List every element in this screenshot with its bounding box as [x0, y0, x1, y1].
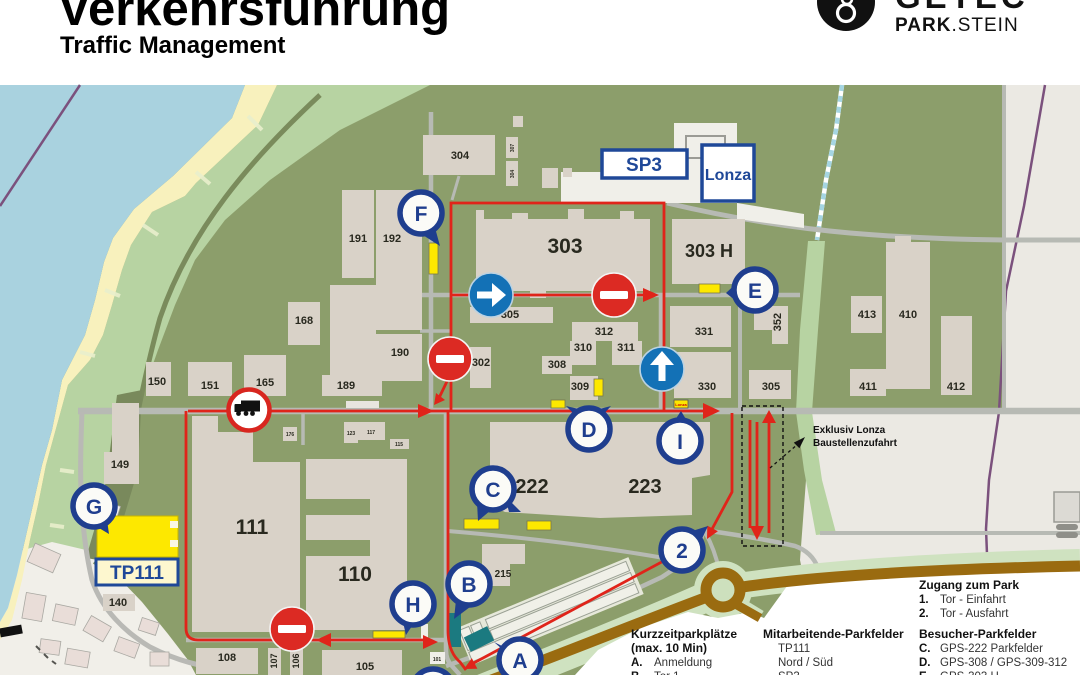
- svg-text:352: 352: [772, 313, 784, 331]
- svg-text:108: 108: [218, 652, 236, 664]
- svg-text:151: 151: [201, 380, 219, 392]
- svg-text:192: 192: [383, 233, 401, 245]
- svg-text:123: 123: [347, 431, 356, 437]
- svg-text:Traffic Management: Traffic Management: [60, 32, 285, 59]
- svg-text:Exklusiv Lonza: Exklusiv Lonza: [813, 425, 886, 436]
- svg-text:D.GPS-308 / GPS-309-312: D.GPS-308 / GPS-309-312: [919, 657, 1067, 669]
- svg-text:303: 303: [547, 235, 582, 258]
- svg-text:312: 312: [595, 326, 613, 338]
- svg-text:Nord / Süd: Nord / Süd: [778, 657, 833, 669]
- svg-text:222: 222: [515, 476, 548, 498]
- svg-text:Baustellenzufahrt: Baustellenzufahrt: [813, 438, 898, 449]
- svg-text:307: 307: [510, 144, 516, 153]
- svg-text:304: 304: [510, 170, 516, 179]
- svg-text:B.Tor 1: B.Tor 1: [631, 671, 680, 675]
- svg-text:PARK.STEIN: PARK.STEIN: [895, 15, 1019, 36]
- svg-text:311: 311: [617, 342, 635, 354]
- svg-text:106: 106: [291, 653, 301, 668]
- svg-text:Kurzzeitparkplätze: Kurzzeitparkplätze: [631, 627, 737, 641]
- svg-text:D: D: [581, 419, 596, 442]
- svg-text:E: E: [748, 280, 762, 303]
- svg-text:GETEC: GETEC: [895, 0, 1029, 15]
- svg-text:149: 149: [111, 459, 129, 471]
- svg-text:Mitarbeitende-Parkfelder: Mitarbeitende-Parkfelder: [763, 627, 904, 641]
- svg-text:2: 2: [676, 540, 688, 563]
- svg-text:309: 309: [571, 381, 589, 393]
- svg-text:310: 310: [574, 342, 592, 354]
- svg-text:B: B: [461, 574, 476, 597]
- svg-text:302: 302: [472, 357, 490, 369]
- svg-text:308: 308: [548, 359, 566, 371]
- svg-text:105: 105: [356, 661, 374, 673]
- svg-text:I: I: [677, 431, 683, 454]
- svg-text:176: 176: [286, 432, 295, 438]
- svg-text:331: 331: [695, 326, 713, 338]
- svg-text:189: 189: [337, 380, 355, 392]
- svg-text:140: 140: [109, 597, 127, 609]
- svg-text:165: 165: [256, 377, 274, 389]
- svg-text:304: 304: [451, 150, 470, 162]
- svg-text:Zugang zum Park: Zugang zum Park: [919, 578, 1019, 592]
- svg-text:F: F: [415, 203, 428, 226]
- svg-text:SP3: SP3: [778, 671, 800, 675]
- svg-text:111: 111: [236, 516, 269, 539]
- svg-text:411: 411: [859, 381, 877, 393]
- svg-text:SP3: SP3: [626, 155, 662, 176]
- svg-text:A: A: [512, 650, 527, 673]
- svg-text:110: 110: [338, 563, 372, 586]
- svg-text:C: C: [485, 479, 500, 502]
- svg-text:TP111: TP111: [778, 643, 810, 655]
- svg-text:303 H: 303 H: [685, 241, 733, 261]
- svg-text:Lonza: Lonza: [675, 402, 687, 407]
- svg-text:H: H: [405, 594, 420, 617]
- svg-text:330: 330: [698, 381, 716, 393]
- svg-text:G: G: [86, 496, 102, 519]
- svg-text:115: 115: [395, 442, 403, 448]
- svg-text:107: 107: [269, 653, 279, 668]
- svg-text:Lonza: Lonza: [705, 167, 751, 184]
- svg-text:168: 168: [295, 315, 313, 327]
- svg-text:190: 190: [391, 347, 409, 359]
- svg-text:223: 223: [628, 476, 661, 498]
- svg-text:TP111: TP111: [110, 563, 164, 584]
- svg-text:191: 191: [349, 233, 367, 245]
- svg-text:215: 215: [495, 569, 512, 580]
- svg-text:Verkehrsführung: Verkehrsführung: [58, 0, 450, 36]
- svg-text:412: 412: [947, 381, 965, 393]
- svg-text:Besucher-Parkfelder: Besucher-Parkfelder: [919, 627, 1037, 641]
- svg-text:410: 410: [899, 309, 917, 321]
- svg-text:150: 150: [148, 376, 166, 388]
- svg-text:101: 101: [433, 657, 442, 663]
- svg-text:117: 117: [367, 430, 375, 436]
- svg-text:305: 305: [762, 381, 780, 393]
- svg-text:(max. 10 Min): (max. 10 Min): [631, 641, 707, 655]
- svg-text:413: 413: [858, 309, 876, 321]
